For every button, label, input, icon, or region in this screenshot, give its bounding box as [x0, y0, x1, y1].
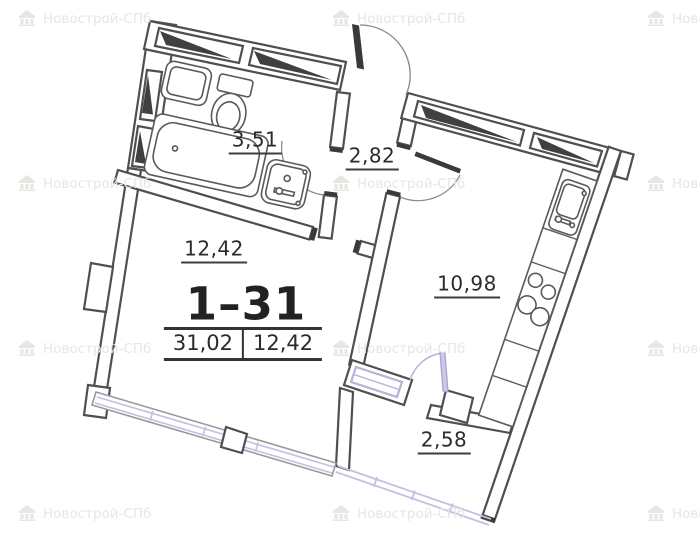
- label-kitchen-area: 10,98: [434, 272, 500, 299]
- area-table: 31,02 12,42: [164, 327, 322, 361]
- wall-kitchen-left: [349, 100, 461, 368]
- floor-plan-canvas: Новострой-СПб Новострой-СПб Новострой-СП…: [0, 0, 700, 536]
- watermark: Новострой-СПб: [672, 176, 700, 192]
- wall-top-kitchen: [401, 93, 633, 180]
- watermark: Новострой-СПб: [43, 11, 151, 27]
- balcony-door-swing: [410, 353, 443, 381]
- label-hallway-area: 2,82: [346, 144, 399, 171]
- label-room-area: 12,42: [181, 237, 247, 264]
- watermark: Новострой-СПб: [357, 341, 465, 357]
- entrance-door-leaf: [352, 24, 364, 70]
- living-area-value: 12,42: [242, 330, 322, 358]
- bathroom-sink: [260, 158, 312, 210]
- balcony-door-leaf: [440, 352, 448, 392]
- watermark: Новострой-СПб: [357, 11, 465, 27]
- apartment-number: 1–31: [186, 278, 306, 331]
- watermark: Новострой-СПб: [357, 506, 465, 522]
- label-bathroom-area: 3,51: [229, 128, 282, 155]
- wall-room-bottom-glazing: [92, 392, 336, 476]
- watermark: Новострой-СПб: [672, 506, 700, 522]
- wall-left-room: [84, 168, 141, 418]
- entrance-door-swing: [360, 25, 410, 95]
- balcony-door: [410, 352, 448, 392]
- floor-plan-drawing: Новострой-СПб Новострой-СПб Новострой-СП…: [0, 0, 700, 536]
- kitchen-door-leaf: [415, 152, 462, 174]
- watermark: Новострой-СПб: [43, 176, 151, 192]
- column: [221, 427, 247, 453]
- watermark: Новострой-СПб: [672, 11, 700, 27]
- watermark: Новострой-СПб: [357, 176, 465, 192]
- watermark: Новострой-СПб: [43, 341, 151, 357]
- wall-balcony-left: [336, 388, 353, 470]
- watermark: Новострой-СПб: [43, 506, 151, 522]
- label-balcony-area: 2,58: [418, 428, 471, 455]
- watermark: Новострой-СПб: [672, 341, 700, 357]
- total-area-value: 31,02: [164, 330, 242, 358]
